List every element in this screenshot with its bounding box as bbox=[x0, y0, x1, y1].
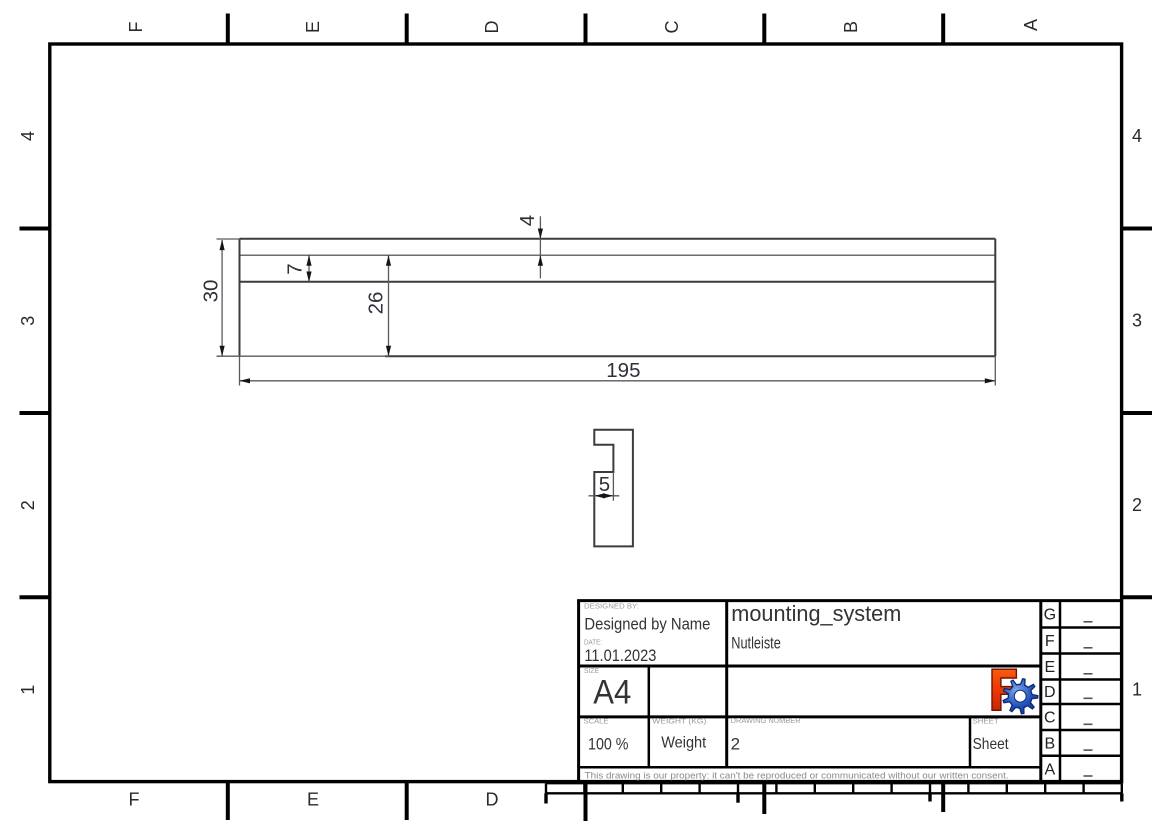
svg-text:E: E bbox=[1044, 659, 1055, 676]
svg-text:100 %: 100 % bbox=[588, 735, 629, 754]
svg-text:E: E bbox=[303, 21, 323, 33]
svg-text:Designed by Name: Designed by Name bbox=[584, 615, 710, 633]
svg-text:C: C bbox=[1044, 710, 1056, 727]
svg-text:F: F bbox=[1045, 633, 1055, 650]
svg-text:DESIGNED BY:: DESIGNED BY: bbox=[584, 602, 639, 611]
svg-text:3: 3 bbox=[1132, 311, 1142, 331]
svg-text:A4: A4 bbox=[593, 673, 631, 711]
svg-text:F: F bbox=[129, 790, 140, 810]
svg-text:G: G bbox=[1044, 607, 1056, 624]
svg-text:A: A bbox=[1044, 761, 1055, 778]
svg-text:11.01.2023: 11.01.2023 bbox=[584, 647, 656, 665]
svg-text:2: 2 bbox=[731, 735, 740, 754]
svg-text:mounting_system: mounting_system bbox=[731, 601, 901, 626]
svg-text:C: C bbox=[662, 21, 682, 34]
svg-text:195: 195 bbox=[606, 359, 640, 382]
svg-text:SCALE: SCALE bbox=[584, 716, 609, 725]
svg-text:26: 26 bbox=[365, 292, 388, 315]
svg-text:2: 2 bbox=[1132, 495, 1142, 515]
svg-text:DATE:: DATE: bbox=[584, 637, 602, 646]
svg-text:B: B bbox=[841, 21, 861, 33]
svg-text:2: 2 bbox=[18, 500, 38, 510]
svg-text:D: D bbox=[486, 790, 499, 810]
svg-text:DRAWING NUMBER: DRAWING NUMBER bbox=[731, 716, 801, 725]
svg-text:Sheet: Sheet bbox=[973, 736, 1009, 753]
svg-text:4: 4 bbox=[18, 131, 38, 141]
svg-text:30: 30 bbox=[200, 280, 223, 303]
svg-text:4: 4 bbox=[1132, 126, 1142, 146]
svg-text:1: 1 bbox=[18, 685, 38, 695]
svg-text:1: 1 bbox=[1132, 680, 1142, 700]
svg-text:This drawing is our property:: This drawing is our property: it can't b… bbox=[585, 771, 1009, 782]
svg-text:7: 7 bbox=[284, 263, 307, 274]
svg-text:D: D bbox=[482, 21, 502, 34]
svg-text:WEIGHT (KG): WEIGHT (KG) bbox=[652, 716, 706, 725]
svg-text:D: D bbox=[1044, 684, 1056, 701]
svg-text:4: 4 bbox=[516, 215, 539, 226]
svg-text:Weight: Weight bbox=[661, 735, 706, 752]
svg-text:SHEET: SHEET bbox=[973, 716, 1000, 725]
svg-text:A: A bbox=[1021, 19, 1041, 31]
svg-text:B: B bbox=[1044, 735, 1055, 752]
svg-text:3: 3 bbox=[18, 316, 38, 326]
svg-text:F: F bbox=[126, 22, 146, 33]
svg-text:Nutleiste: Nutleiste bbox=[731, 633, 781, 652]
svg-text:E: E bbox=[307, 790, 319, 810]
svg-text:5: 5 bbox=[599, 473, 610, 496]
